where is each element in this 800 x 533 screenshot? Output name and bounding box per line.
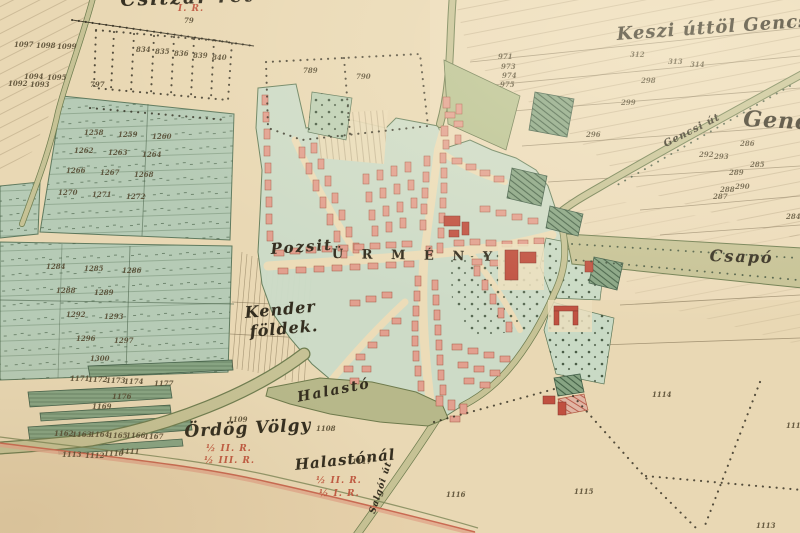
map-artwork xyxy=(0,0,800,533)
map-canvas: Csitzár rétKeszi úttöl GencsGencsGencsi … xyxy=(0,0,800,533)
